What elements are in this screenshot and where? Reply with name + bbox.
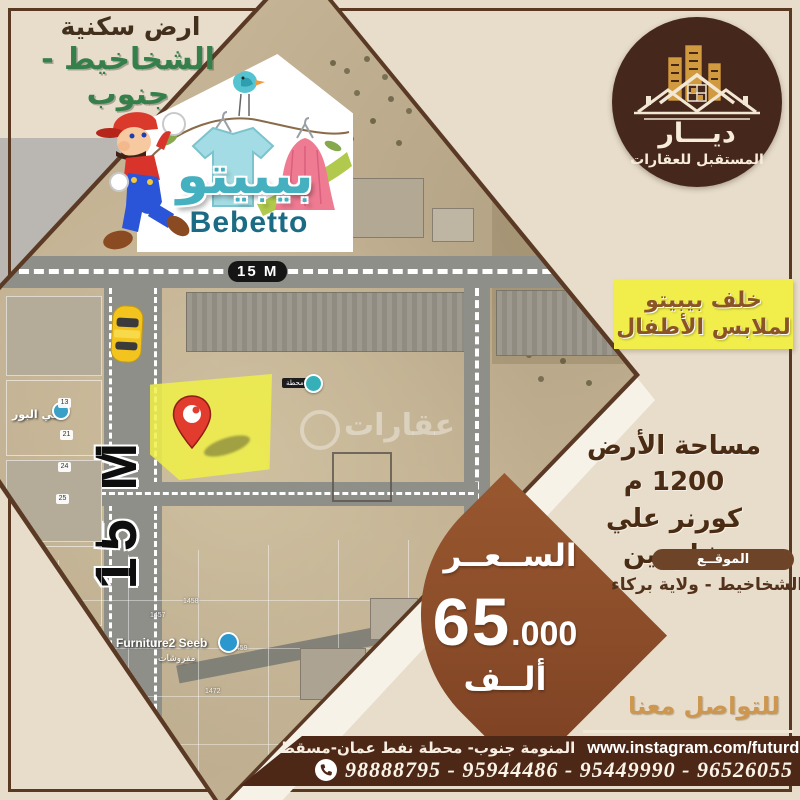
plot-number: 1456: [80, 634, 96, 641]
location-value: الشخاخيط - ولاية بركاء: [611, 575, 800, 595]
residential-plot: [6, 460, 102, 542]
furniture-store-icon: [218, 632, 239, 653]
plot-marker: 25: [56, 494, 69, 504]
plot-marker: 24: [58, 462, 71, 472]
highlight-line2: لملابس الأطفال: [616, 314, 791, 342]
grid-line: [128, 555, 129, 800]
building: [352, 178, 424, 238]
parking-lot: [496, 290, 624, 356]
plot-marker: 21: [60, 430, 73, 440]
road-horizontal-mid: [96, 482, 478, 506]
address-text: المنومة جنوب- محطة نفط عمان-مسقط: [279, 739, 575, 757]
contact-heading: للتواصل معنا: [572, 692, 780, 720]
watermark-logo: [300, 410, 340, 450]
land-area-text: مساحة الأرض 1200 م: [555, 428, 793, 501]
trees-cluster: [505, 120, 511, 126]
grid-line: [198, 550, 199, 800]
price-label: الســعــر: [440, 538, 580, 574]
plot-number: 1473: [118, 700, 134, 707]
contact-bar-line1: المنومة جنوب- محطة نفط عمان-مسقط www.ins…: [315, 739, 793, 758]
residential-plot: [6, 630, 102, 712]
contact-bar-line2: 98888795 - 95944486 - 95449990 - 9652605…: [315, 757, 793, 783]
building-outline: [332, 452, 392, 502]
bebetto-name-arabic: بيبيتو: [150, 146, 340, 206]
furniture-store-label: Furniture2 Seeb: [116, 636, 207, 650]
plot-marker: 13: [58, 398, 71, 408]
price-amount: 65.000: [408, 584, 602, 661]
map-poi-icon: [304, 374, 323, 393]
location-label-bar: الموقــع: [652, 549, 794, 570]
price-big: 65: [433, 585, 512, 660]
land-type-title: ارض سكنية: [28, 12, 233, 41]
phone-numbers: 98888795 - 95944486 - 95449990 - 9652605…: [345, 757, 793, 783]
location-row: الشخاخيط - ولاية بركاء: [606, 572, 796, 598]
road-horizontal-top: [0, 256, 646, 288]
agency-name: ديـــار: [612, 118, 782, 149]
road-width-badge: 15 M: [228, 261, 287, 282]
yellow-car-icon: [106, 303, 147, 365]
residential-plot: [6, 296, 102, 376]
trees-cluster: [330, 60, 336, 66]
plot-number: 1457: [150, 612, 166, 619]
agency-subtitle: المستقبل للعقارات: [612, 152, 782, 168]
building: [432, 208, 474, 242]
furniture-store-label-ar: مفروشات: [158, 654, 195, 664]
location-pin-icon: [170, 394, 214, 450]
plot-number: 1472: [205, 688, 221, 695]
highlight-line1: خلف بيبيتو: [645, 287, 762, 315]
residential-plot: [6, 546, 102, 626]
price-unit: ألــف: [438, 660, 572, 698]
parking-lot: [186, 292, 466, 352]
price-decimals: .000: [511, 615, 577, 653]
bebetto-name-latin: Bebetto: [158, 206, 340, 240]
contact-underline: [583, 730, 793, 733]
instagram-url: www.instagram.com/futurdiyar: [587, 739, 800, 758]
whatsapp-icon: [315, 759, 337, 781]
map-watermark: عقارات: [344, 408, 455, 443]
highlight-box: خلف بيبيتو لملابس الأطفال: [614, 279, 793, 349]
plot-number: 1458: [183, 598, 199, 605]
grid-line: [58, 560, 59, 800]
